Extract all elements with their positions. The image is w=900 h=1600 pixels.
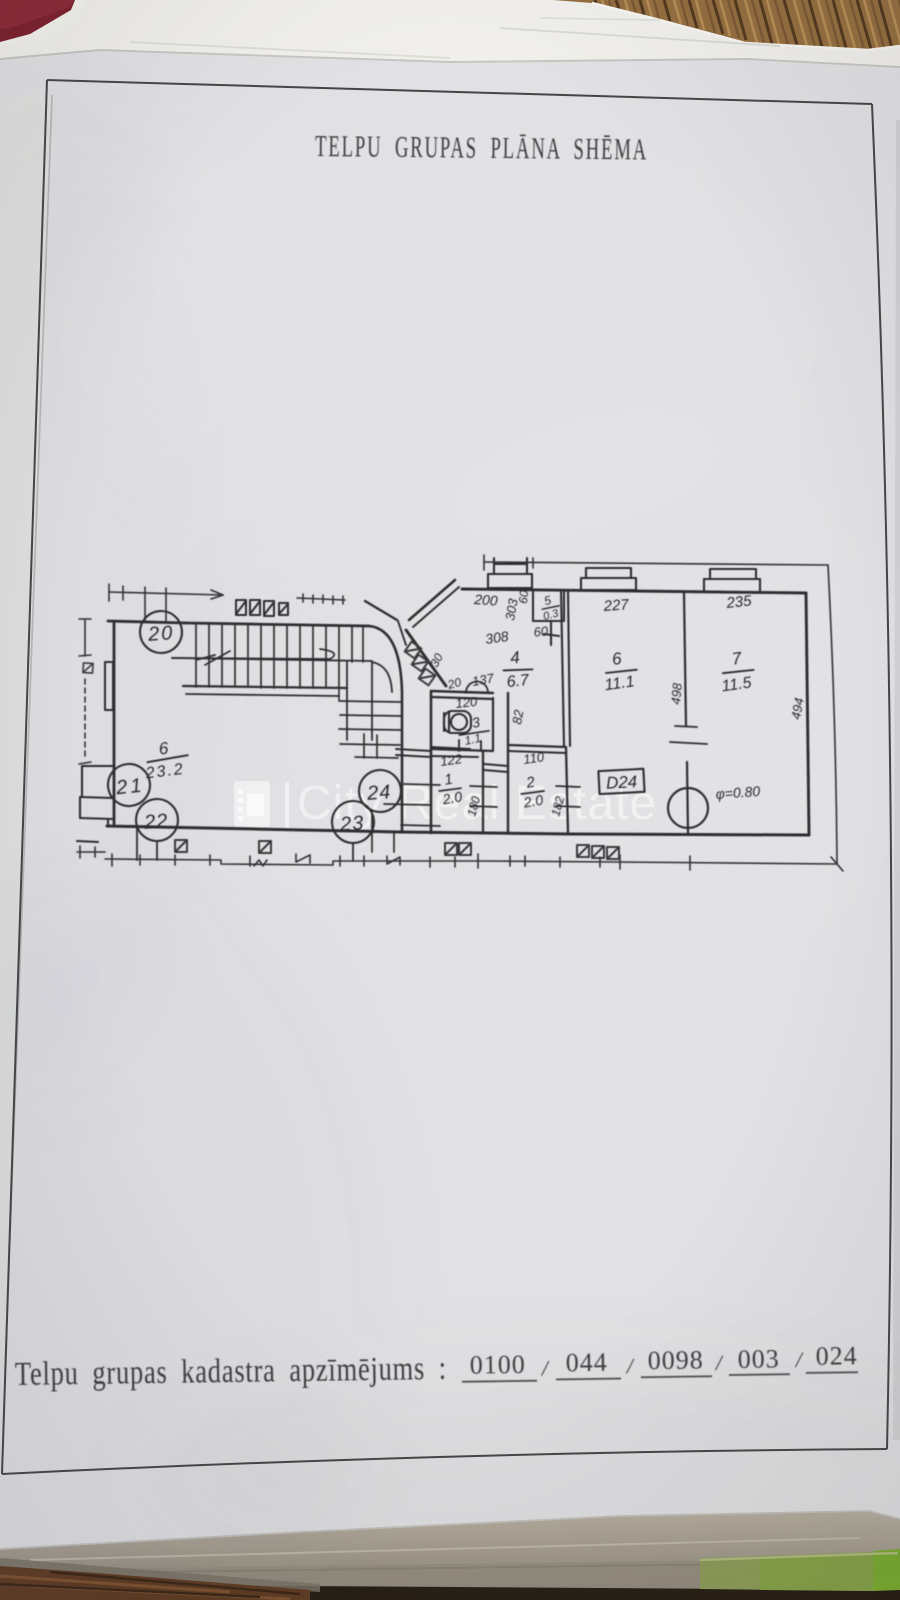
svg-text:498: 498 [668, 682, 685, 706]
svg-text:60: 60 [516, 589, 531, 604]
svg-text:24: 24 [365, 781, 392, 805]
svg-text:044: 044 [566, 1348, 608, 1378]
svg-text:D24: D24 [606, 772, 638, 793]
svg-text:20: 20 [146, 622, 175, 646]
svg-text:TELPU GRUPAS PLĀNA SHĒMA: TELPU GRUPAS PLĀNA SHĒMA [315, 128, 648, 166]
svg-text:200: 200 [473, 591, 499, 609]
svg-text:024: 024 [815, 1341, 857, 1371]
svg-text:6.7: 6.7 [506, 672, 531, 691]
svg-text:23: 23 [338, 812, 365, 836]
svg-text:4: 4 [509, 648, 520, 668]
svg-text:0098: 0098 [648, 1345, 704, 1375]
svg-text:235: 235 [725, 592, 753, 612]
svg-text:227: 227 [602, 596, 630, 615]
svg-text:0100: 0100 [470, 1350, 526, 1380]
svg-text:21: 21 [114, 774, 145, 799]
svg-text:003: 003 [738, 1344, 780, 1374]
svg-text:120: 120 [455, 694, 479, 711]
svg-text:60: 60 [533, 623, 549, 639]
svg-text:110: 110 [522, 749, 545, 767]
svg-text:Telpu grupas kadastra apzīmēju: Telpu grupas kadastra apzīmējums : [15, 1350, 447, 1393]
svg-text:φ=0.80: φ=0.80 [715, 783, 761, 802]
svg-text:122: 122 [439, 751, 463, 769]
svg-text:308: 308 [484, 628, 510, 647]
svg-text:22: 22 [142, 810, 169, 834]
